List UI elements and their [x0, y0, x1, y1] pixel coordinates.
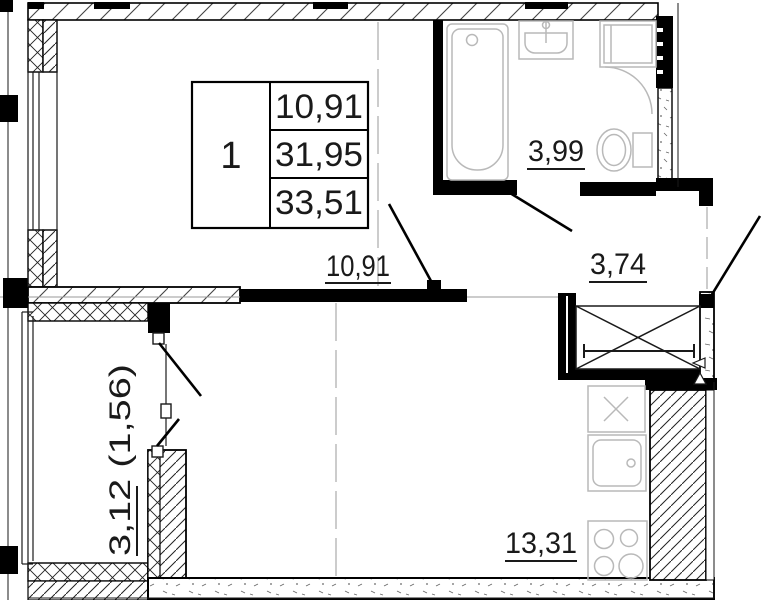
mid-wall-hatched: [28, 287, 240, 303]
kitchen-area-label: 13,31: [505, 527, 577, 560]
bathroom-left-wall: [433, 20, 443, 182]
balcony-top-wall: [28, 303, 148, 321]
balcony-bottom-wall: [28, 563, 148, 581]
legend-unit-count: 1: [220, 135, 241, 177]
legend-table: 1 10,91 31,95 33,51: [192, 82, 368, 228]
bathroom-area-label: 3,99: [528, 135, 584, 168]
bathroom-right-wall: [658, 88, 672, 182]
balcony-area-label: 3,12 (1,56): [104, 364, 137, 556]
legend-apartment-area: 31,95: [275, 136, 363, 174]
balcony-vent-hinge: [152, 446, 163, 457]
floor-plan-drawing: 1 10,91 31,95 33,51 10,91 3,99 3,74 13,3…: [0, 0, 769, 600]
legend-total-area: 33,51: [275, 184, 363, 222]
balcony-door-hinge: [153, 333, 164, 344]
bottom-wall: [148, 578, 714, 599]
room-area-label: 10,91: [326, 250, 390, 283]
hallway-area-label: 3,74: [590, 248, 646, 281]
balcony-window-latch: [161, 404, 171, 418]
vent-shaft: [656, 16, 673, 88]
kitchen-right-wall: [650, 390, 706, 580]
legend-living-area: 10,91: [275, 88, 363, 126]
floor-plan: 1 10,91 31,95 33,51 10,91 3,99 3,74 13,3…: [0, 0, 769, 600]
